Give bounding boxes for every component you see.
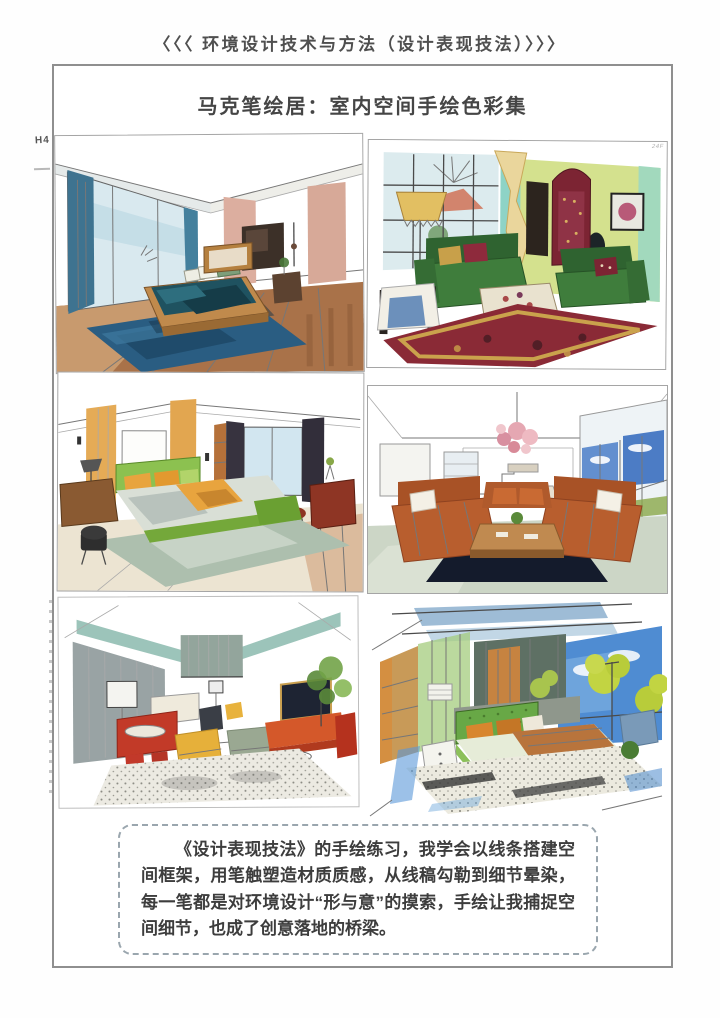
sketch-lounge xyxy=(57,595,359,809)
page: 〈〈〈 环境设计技术与方法（设计表现技法）〉〉〉 马克笔绘居：室内空间手绘色彩集… xyxy=(0,0,720,1018)
page-header: 〈〈〈 环境设计技术与方法（设计表现技法）〉〉〉 xyxy=(0,30,720,55)
caption-text: 《设计表现技法》的手绘练习，我学会以线条搭建空间框架，用笔触塑造材质质感，从线稿… xyxy=(141,837,575,942)
sketch-bedroom-blue xyxy=(54,133,365,374)
caption-box: 《设计表现技法》的手绘练习，我学会以线条搭建空间框架，用笔触塑造材质质感，从线稿… xyxy=(118,824,598,955)
sketch-bedroom-green-orange xyxy=(57,371,365,592)
page-title: 马克笔绘居：室内空间手绘色彩集 xyxy=(52,90,673,119)
pencil-scribble xyxy=(34,168,50,171)
handwritten-margin-note: H4 xyxy=(35,135,50,147)
sketch-bedroom-axon xyxy=(362,600,667,818)
perforation-dots xyxy=(49,600,52,796)
sketch-living-room-one-point xyxy=(367,385,668,594)
handwritten-corner-note: 24F xyxy=(652,144,664,150)
sketch-vintage-living-room: 24F xyxy=(366,139,668,370)
